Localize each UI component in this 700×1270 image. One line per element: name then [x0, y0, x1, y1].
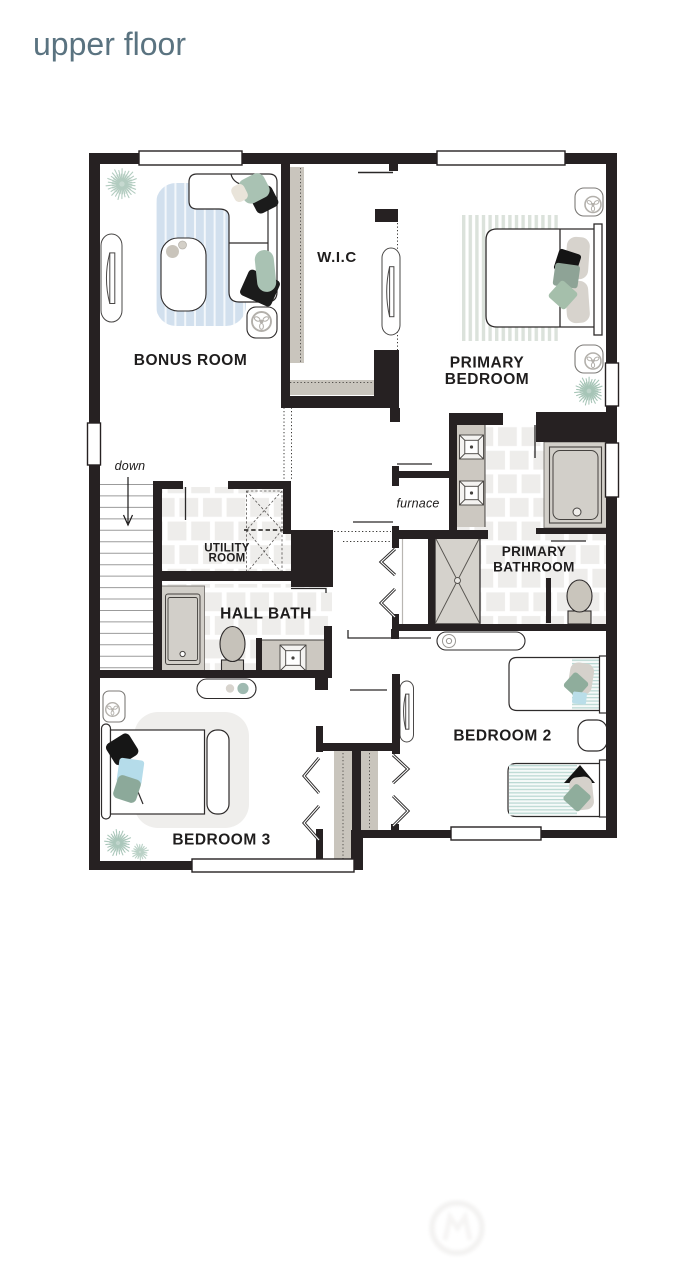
svg-text:PRIMARY: PRIMARY — [502, 544, 567, 559]
svg-text:BEDROOM: BEDROOM — [445, 371, 529, 388]
svg-text:down: down — [115, 459, 146, 473]
svg-text:W.I.C: W.I.C — [317, 249, 357, 266]
svg-text:furnace: furnace — [396, 497, 439, 511]
svg-text:BATHROOM: BATHROOM — [493, 560, 575, 575]
svg-text:BEDROOM 3: BEDROOM 3 — [172, 832, 270, 849]
svg-text:ROOM: ROOM — [209, 553, 246, 565]
svg-text:PRIMARY: PRIMARY — [450, 355, 525, 372]
svg-text:HALL BATH: HALL BATH — [220, 606, 312, 623]
svg-text:BEDROOM 2: BEDROOM 2 — [453, 728, 551, 745]
svg-text:BONUS ROOM: BONUS ROOM — [134, 352, 248, 369]
svg-text:upper floor: upper floor — [33, 26, 186, 62]
